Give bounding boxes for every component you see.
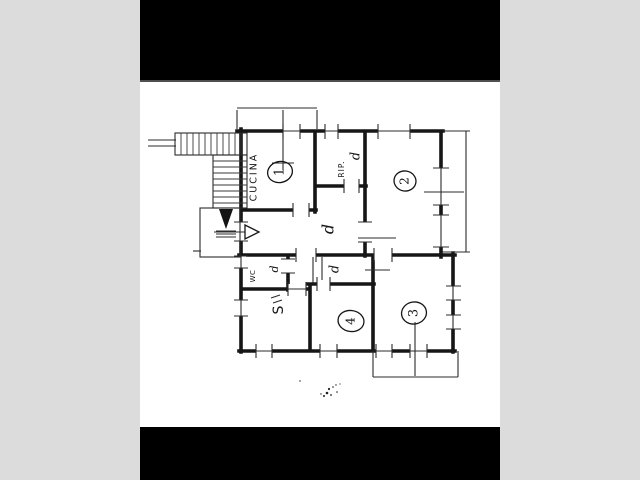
top-black-bar (140, 0, 500, 82)
room4-number: 4 (344, 317, 358, 325)
storage-label: RIP. (337, 160, 346, 177)
room2-number-circle: 2 (392, 169, 417, 193)
kitchen-label: CUCINA (249, 153, 260, 202)
room4-door-mark: d (328, 265, 343, 273)
storage-door-mark: d (349, 152, 364, 160)
room2-number: 2 (398, 177, 412, 185)
scanned-document-area: CUCINA RIP. WC S 1 2 3 4 d d d d (140, 82, 500, 427)
hall-door-mark: d (319, 224, 338, 234)
room4-number-circle: 4 (337, 309, 366, 333)
room3-number: 3 (407, 309, 422, 317)
scanned-floor-plan-page: { "page": { "background_color": "#dcdcdc… (0, 0, 640, 480)
floor-plan-drawing: CUCINA RIP. WC S 1 2 3 4 d d d d (140, 82, 500, 427)
room1-number: 1 (273, 168, 288, 176)
stairs-down-arrow (219, 209, 233, 229)
bottom-black-bar (140, 427, 500, 480)
living-label-flourish (271, 295, 282, 303)
living-room-label: S (271, 305, 287, 314)
room3-number-circle: 3 (400, 300, 428, 326)
scan-noise-specks (299, 380, 340, 397)
wc-door-mark: d (268, 265, 281, 272)
wc-label: WC (249, 270, 257, 283)
